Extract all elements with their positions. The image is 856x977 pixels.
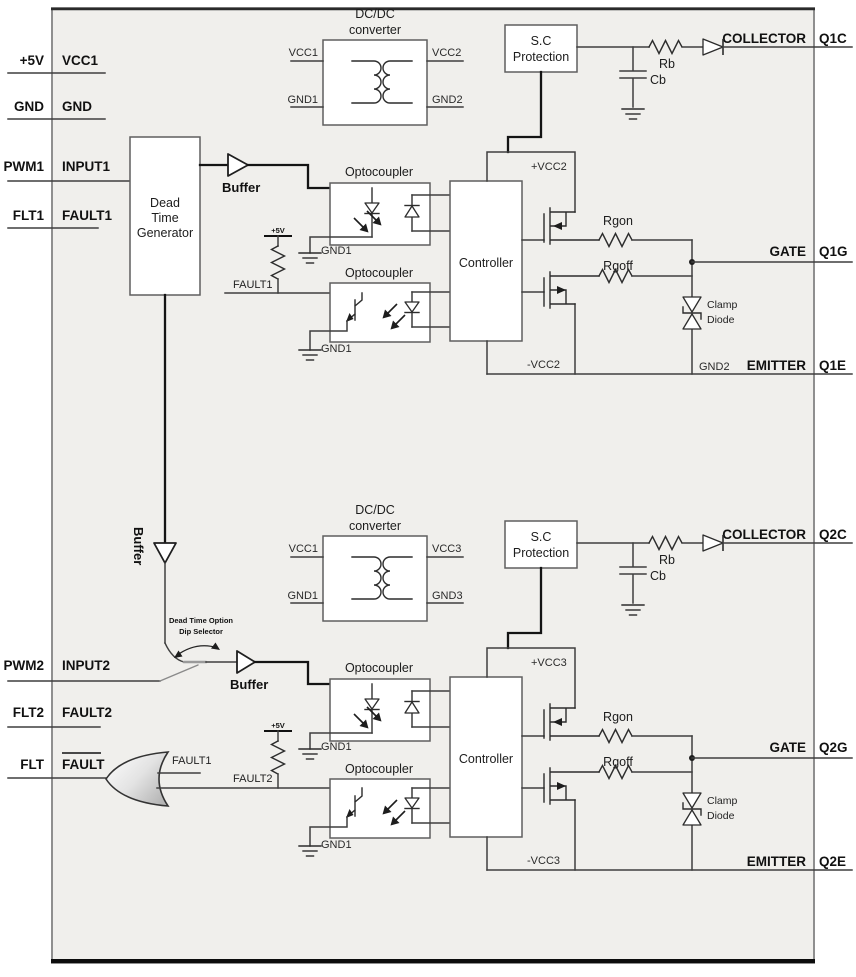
sc-label: Protection — [513, 50, 569, 64]
dip-selector-label: Dead Time Option — [169, 616, 233, 625]
dcdc-pin: VCC3 — [432, 543, 461, 555]
fault2-net-label: FAULT2 — [233, 773, 273, 785]
output-function-label: EMITTER — [747, 854, 806, 869]
dcdc-title: DC/DC — [355, 7, 395, 21]
output-function-label: EMITTER — [747, 358, 806, 373]
output-function-label: COLLECTOR — [722, 527, 806, 542]
sc-label: S.C — [531, 34, 552, 48]
dcdc-pin: VCC1 — [289, 47, 318, 59]
controller-label: Controller — [459, 256, 513, 270]
output-pin-label: Q2E — [819, 854, 846, 869]
pin-label-external: FLT2 — [13, 705, 44, 720]
gnd2-label: GND2 — [699, 361, 730, 373]
gate-driver-schematic: +5V VCC1 GND GND PWM1 INPUT1 FLT1 FAULT1… — [0, 0, 856, 977]
dcdc-title: converter — [349, 23, 401, 37]
clamp-label: Clamp — [707, 795, 738, 807]
gnd1-label: GND1 — [321, 343, 352, 355]
output-pin-label: Q1C — [819, 31, 847, 46]
sc-label: S.C — [531, 530, 552, 544]
pin-label-internal: GND — [62, 99, 92, 114]
optocoupler-title: Optocoupler — [345, 165, 413, 179]
rb-label: Rb — [659, 553, 675, 567]
vcc-pos-label: +VCC3 — [531, 657, 567, 669]
dcdc-pin: VCC2 — [432, 47, 461, 59]
dcdc-pin: GND2 — [432, 94, 463, 106]
dcdc-title: converter — [349, 519, 401, 533]
rgon-label: Rgon — [603, 214, 633, 228]
vcc-neg-label: -VCC3 — [527, 855, 560, 867]
pin-label-external: FLT1 — [13, 208, 45, 223]
pin-label-external: GND — [14, 99, 44, 114]
output-pin-label: Q2C — [819, 527, 847, 542]
vcc-neg-label: -VCC2 — [527, 359, 560, 371]
output-pin-label: Q1G — [819, 244, 848, 259]
output-pin-label: Q1E — [819, 358, 846, 373]
optocoupler-title: Optocoupler — [345, 661, 413, 675]
buffer-label: Buffer — [222, 180, 260, 195]
gnd1-label: GND1 — [321, 245, 352, 257]
rgoff-label: Rgoff — [603, 755, 633, 769]
dtg-label: Time — [151, 211, 178, 225]
schematic-canvas: +5V VCC1 GND GND PWM1 INPUT1 FLT1 FAULT1… — [0, 0, 856, 977]
rail-5v-label: +5V — [271, 721, 285, 730]
output-pin-label: Q2G — [819, 740, 848, 755]
optocoupler-title: Optocoupler — [345, 762, 413, 776]
optocoupler-title: Optocoupler — [345, 266, 413, 280]
pin-label-internal: INPUT2 — [62, 658, 110, 673]
dcdc-title: DC/DC — [355, 503, 395, 517]
output-function-label: GATE — [770, 244, 807, 259]
rgon-label: Rgon — [603, 710, 633, 724]
cb-label: Cb — [650, 569, 666, 583]
gnd1-label: GND1 — [321, 741, 352, 753]
clamp-diode-icon — [683, 793, 701, 825]
output-function-label: GATE — [770, 740, 807, 755]
controller-label: Controller — [459, 752, 513, 766]
vcc-pos-label: +VCC2 — [531, 161, 567, 173]
pin-label-internal: INPUT1 — [62, 159, 111, 174]
rb-label: Rb — [659, 57, 675, 71]
dcdc-pin: VCC1 — [289, 543, 318, 555]
pin-label-internal: FAULT2 — [62, 705, 112, 720]
buffer-vertical-label: Buffer — [131, 527, 146, 565]
gnd1-label: GND1 — [321, 839, 352, 851]
dtg-label: Dead — [150, 196, 180, 210]
dcdc-pin: GND1 — [287, 590, 318, 602]
rail-5v-label: +5V — [271, 226, 285, 235]
pin-label-external: PWM2 — [4, 658, 45, 673]
rgoff-label: Rgoff — [603, 259, 633, 273]
pin-label-internal-overlined: FAULT — [62, 757, 105, 772]
pin-label-external: PWM1 — [4, 159, 45, 174]
clamp-label: Clamp — [707, 299, 738, 311]
dip-selector-label: Dip Selector — [179, 627, 223, 636]
clamp-label: Diode — [707, 810, 735, 822]
dtg-label: Generator — [137, 226, 193, 240]
pin-label-external: +5V — [20, 53, 44, 68]
pin-label-internal: FAULT1 — [62, 208, 112, 223]
fault1-net-label: FAULT1 — [233, 279, 273, 291]
sc-label: Protection — [513, 546, 569, 560]
output-function-label: COLLECTOR — [722, 31, 806, 46]
cb-label: Cb — [650, 73, 666, 87]
dcdc-pin: GND1 — [287, 94, 318, 106]
clamp-label: Diode — [707, 314, 735, 326]
pin-label-external: FLT — [20, 757, 44, 772]
clamp-diode-icon — [683, 297, 701, 329]
buffer2-label: Buffer — [230, 677, 268, 692]
pin-label-internal: VCC1 — [62, 53, 99, 68]
or-input-label: FAULT1 — [172, 755, 212, 767]
dcdc-pin: GND3 — [432, 590, 463, 602]
